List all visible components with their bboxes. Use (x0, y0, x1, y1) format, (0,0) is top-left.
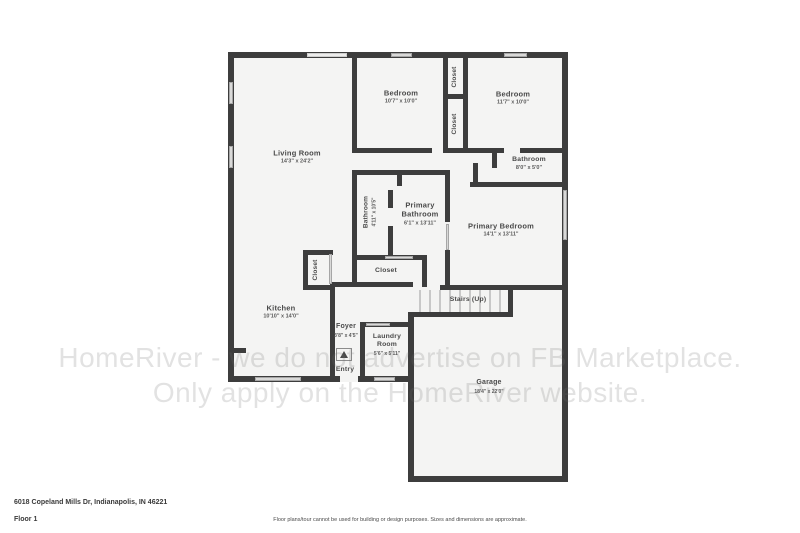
stair-tread (419, 290, 421, 312)
wall (388, 226, 393, 258)
stair-tread (429, 290, 431, 312)
window (255, 377, 301, 381)
window (229, 82, 233, 104)
room-dims: 14'1" x 13'11" (468, 232, 534, 239)
room-label-primary-bathroom: Primary Bathroom 6'1" x 13'11" (398, 201, 442, 228)
stair-tread (489, 290, 491, 312)
room-dims: 18'4" x 22'0" (474, 389, 503, 395)
wall (397, 170, 402, 186)
window (374, 377, 395, 381)
room-label-closet-kitchen: Closet (312, 259, 320, 280)
room-label-bathroom-small: Bathroom 4'11" x 10'5" (362, 196, 377, 228)
wall (422, 255, 427, 287)
room-dims: 5'6" x 5'11" (366, 351, 408, 357)
room-name: Primary Bedroom (468, 221, 534, 230)
room-label-bedroom-left: Bedroom 10'7" x 10'0" (384, 88, 418, 105)
room-label-entry: Entry (336, 366, 354, 374)
room-dims: 3'8" x 4'5" (334, 333, 358, 339)
room-label-closet-primary: Closet (375, 267, 397, 275)
room-label-primary-bedroom: Primary Bedroom 14'1" x 13'11" (468, 221, 534, 238)
room-label-foyer: Foyer 3'8" x 4'5" (334, 323, 358, 339)
wall (408, 476, 568, 482)
wall (443, 52, 448, 153)
wall (445, 250, 450, 285)
room-dims: 11'7" x 10'0" (496, 100, 530, 107)
wall (443, 94, 468, 99)
wall (352, 170, 357, 285)
room-name: Kitchen (263, 303, 298, 312)
room-name: Entry (336, 366, 354, 374)
wall (388, 190, 393, 208)
wall (470, 182, 568, 187)
room-name: Closet (312, 259, 320, 280)
wall (234, 348, 246, 353)
wall (303, 285, 333, 290)
wall (303, 250, 308, 290)
room-label-closet-upper: Closet (451, 66, 459, 87)
wall (408, 312, 414, 482)
room-dims: 6'1" x 13'11" (398, 220, 442, 227)
wall (352, 52, 357, 152)
room-name: Living Room (273, 148, 321, 157)
room-name: Laundry Room (366, 333, 408, 350)
wall (473, 163, 478, 187)
room-name: Bathroom (362, 196, 370, 228)
room-label-living-room: Living Room 14'3" x 24'2" (273, 148, 321, 165)
room-label-bathroom-hall: Bathroom 8'0" x 5'0" (512, 156, 546, 172)
room-label-bedroom-right: Bedroom 11'7" x 10'0" (496, 89, 530, 106)
wall (463, 57, 468, 152)
wall (520, 148, 568, 153)
room-label-garage: Garage 18'4" x 22'0" (474, 379, 503, 395)
wall (330, 282, 413, 287)
room-label-laundry: Laundry Room 5'6" x 5'11" (366, 333, 408, 357)
wall (360, 322, 365, 378)
wall (562, 52, 568, 482)
room-dims: 14'3" x 24'2" (273, 159, 321, 166)
room-dims: 10'7" x 10'0" (384, 99, 418, 106)
room-name: Foyer (334, 323, 358, 332)
room-label-kitchen: Kitchen 10'10" x 14'0" (263, 303, 298, 320)
window (563, 190, 567, 240)
room-name: Garage (474, 379, 503, 388)
room-name: Bathroom (512, 156, 546, 164)
wall (508, 285, 513, 317)
room-name: Bedroom (384, 88, 418, 97)
window (446, 224, 449, 250)
window (329, 254, 332, 284)
window (385, 256, 413, 259)
disclaimer-text: Floor plans/tour cannot be used for buil… (0, 517, 800, 523)
window (366, 323, 390, 326)
stair-tread (499, 290, 501, 312)
room-name: Stairs (Up) (450, 296, 487, 304)
room-dims: 10'10" x 14'0" (263, 314, 298, 321)
room-name: Bedroom (496, 89, 530, 98)
window (504, 53, 527, 57)
room-name: Closet (375, 267, 397, 275)
room-label-stairs: Stairs (Up) (450, 296, 487, 304)
wall (445, 172, 450, 222)
entry-door-icon (336, 348, 352, 361)
window (229, 146, 233, 168)
room-name: Primary Bathroom (398, 201, 442, 220)
room-name: Closet (451, 66, 459, 87)
wall (408, 312, 508, 317)
window (307, 53, 347, 57)
wall (492, 148, 497, 168)
wall (352, 148, 432, 153)
room-name: Closet (451, 113, 459, 134)
room-dims: 4'11" x 10'5" (371, 196, 377, 228)
floor-plan-page: Living Room 14'3" x 24'2" Bedroom 10'7" … (0, 0, 800, 533)
window (391, 53, 412, 57)
room-label-closet-lower: Closet (451, 113, 459, 134)
property-address: 6018 Copeland Mills Dr, Indianapolis, IN… (14, 499, 167, 506)
stair-tread (439, 290, 441, 312)
room-dims: 8'0" x 5'0" (512, 165, 546, 172)
